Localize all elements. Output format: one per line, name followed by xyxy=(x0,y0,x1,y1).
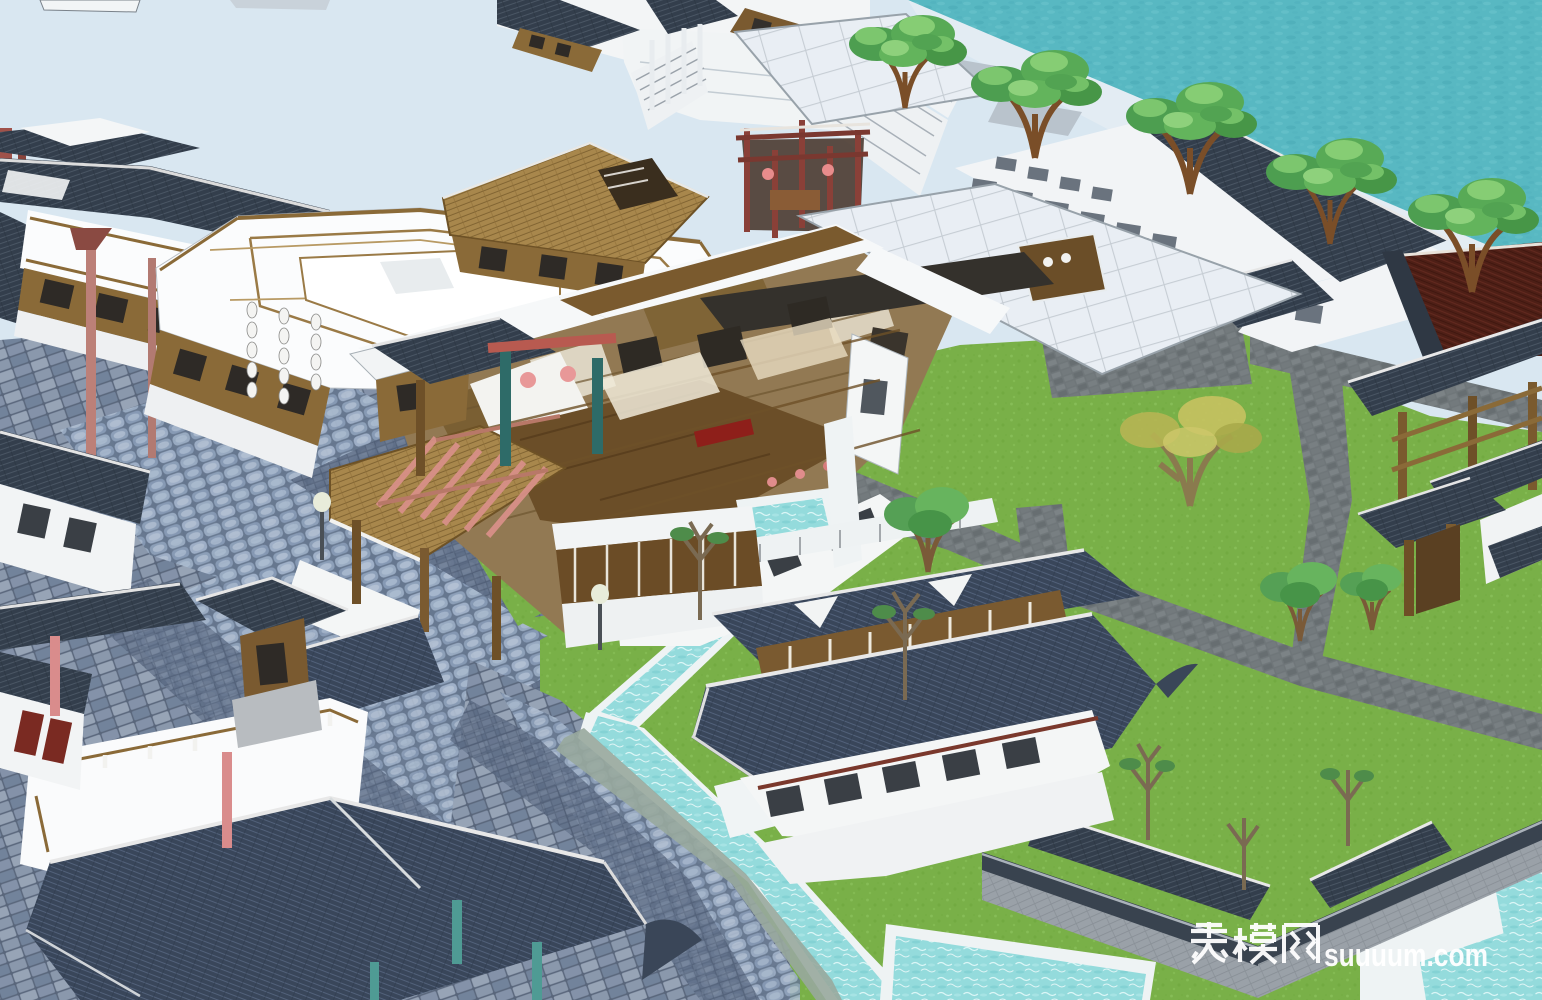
svg-text:suuuum.com: suuuum.com xyxy=(1324,937,1488,973)
